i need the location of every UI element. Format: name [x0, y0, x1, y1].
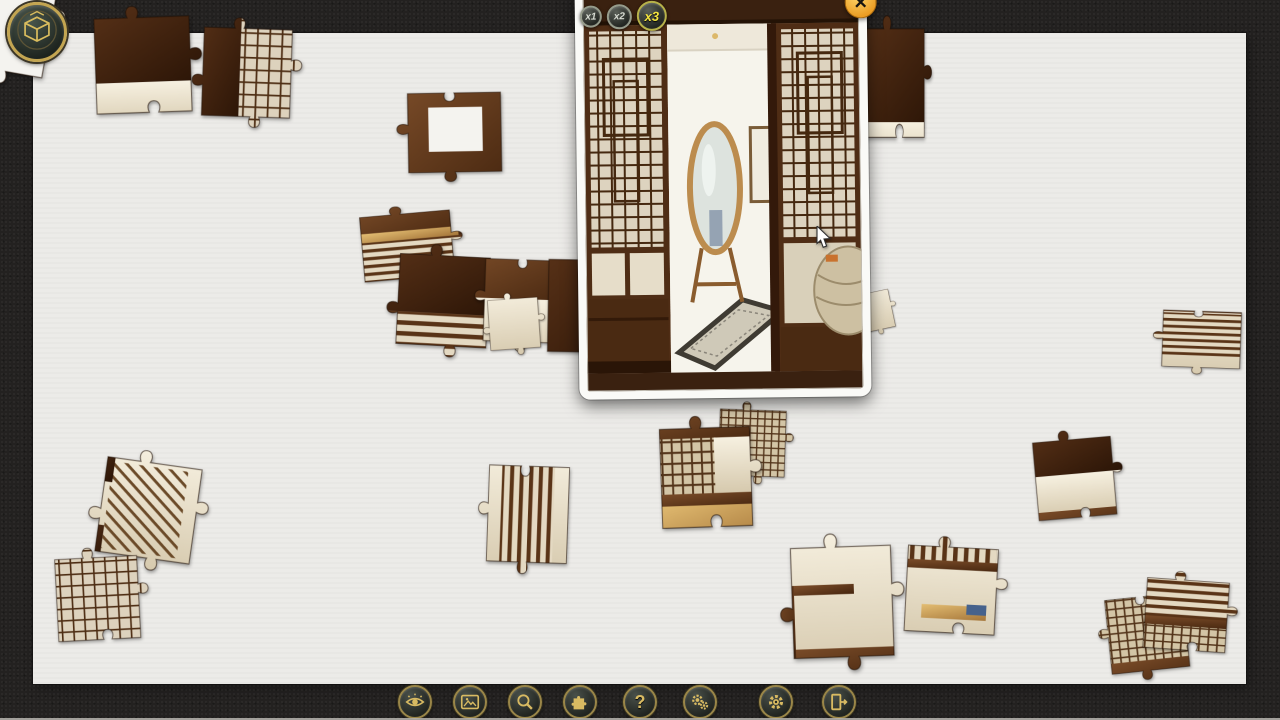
preview-zoom-controls: x1x2x3: [580, 1, 667, 32]
preview-zoom-x1-button[interactable]: x1: [580, 5, 602, 27]
puzzle-piece[interactable]: [772, 525, 913, 679]
icon-magnifier: [514, 691, 536, 713]
puzzle-piece[interactable]: [76, 0, 210, 132]
magnifier-button[interactable]: [508, 685, 542, 719]
icon-gear: [765, 691, 787, 713]
preview-zoom-x3-button[interactable]: x3: [637, 1, 667, 31]
gear-button[interactable]: [759, 685, 793, 719]
game-logo-button[interactable]: [7, 2, 67, 62]
preview-photo: [583, 0, 864, 392]
icon-puzzle: [569, 691, 591, 713]
cube-icon: [14, 7, 60, 58]
puzzle-piece[interactable]: [1147, 299, 1256, 379]
puzzle-piece[interactable]: [185, 11, 309, 135]
icon-picture: [459, 691, 481, 713]
question-button[interactable]: ?: [623, 685, 657, 719]
icon-gears: [689, 691, 711, 713]
exit-button[interactable]: [822, 685, 856, 719]
puzzle-piece[interactable]: [887, 529, 1015, 652]
puzzle-piece[interactable]: [390, 78, 518, 188]
preview-window: x1x2x3 ✕: [574, 0, 871, 400]
puzzle-piece-button[interactable]: [563, 685, 597, 719]
puzzle-piece[interactable]: [471, 447, 584, 581]
eye-button[interactable]: [398, 685, 432, 719]
preview-zoom-x2-button[interactable]: x2: [607, 4, 632, 29]
icon-eye: [404, 691, 426, 713]
puzzle-piece[interactable]: [1017, 421, 1132, 536]
picture-button[interactable]: [453, 685, 487, 719]
gears-button[interactable]: [683, 685, 717, 719]
icon-exit: [828, 691, 850, 713]
icon-question: ?: [635, 692, 646, 713]
